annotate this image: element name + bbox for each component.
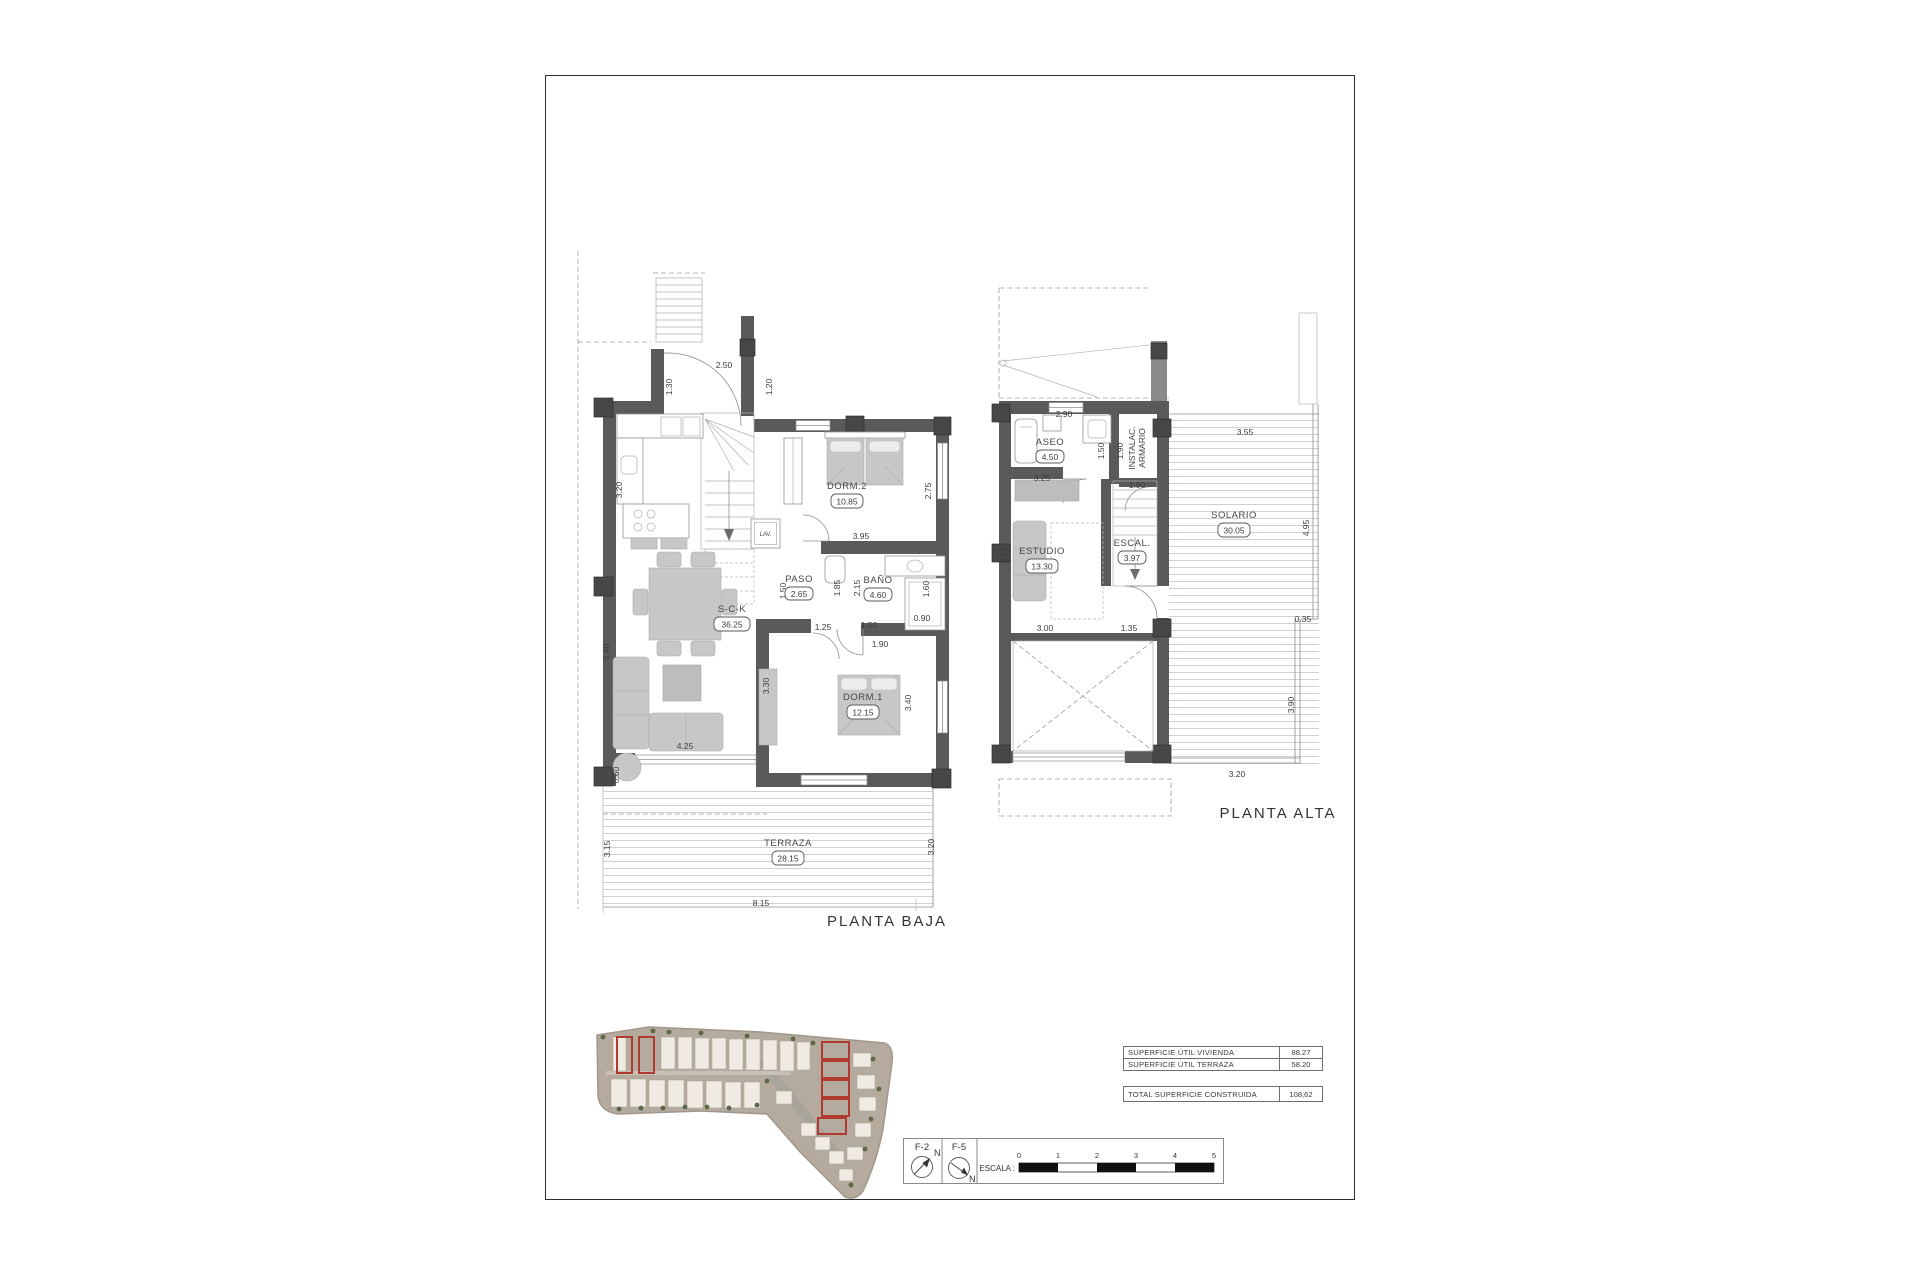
planta-baja: LAV. (578, 251, 951, 930)
row-label: SUPERFICIE ÚTIL TERRAZA (1124, 1060, 1279, 1069)
svg-text:1.50: 1.50 (1096, 442, 1106, 459)
svg-text:8.15: 8.15 (753, 898, 770, 908)
room-dorm1: DORM.1 (843, 692, 883, 703)
svg-text:10.85: 10.85 (836, 497, 858, 507)
title-planta-baja: PLANTA BAJA (827, 913, 947, 930)
svg-text:N: N (969, 1174, 976, 1184)
surface-total-table: TOTAL SUPERFICIE CONSTRUIDA 108,62 (1123, 1086, 1323, 1102)
svg-text:2.15: 2.15 (852, 579, 862, 596)
svg-text:3: 3 (1134, 1151, 1138, 1160)
table-row: SUPERFICIE ÚTIL TERRAZA 58.20 (1124, 1058, 1322, 1070)
total-value: 108,62 (1279, 1087, 1322, 1101)
void-double-height (1013, 641, 1153, 751)
svg-text:1.20: 1.20 (764, 378, 774, 395)
svg-text:1.25: 1.25 (815, 622, 832, 632)
stair-alta (1113, 481, 1157, 618)
svg-text:5.40: 5.40 (601, 643, 611, 660)
svg-text:1.60: 1.60 (921, 580, 931, 597)
room-dorm2: DORM.2 (827, 481, 867, 492)
svg-text:1.90: 1.90 (1115, 442, 1125, 459)
kitchen-fixtures (617, 414, 703, 549)
room-aseo: ASEO (1036, 437, 1064, 448)
svg-text:1.50: 1.50 (861, 620, 878, 630)
svg-text:4: 4 (1173, 1151, 1177, 1160)
svg-text:N: N (934, 1148, 941, 1158)
svg-text:3.30: 3.30 (761, 677, 771, 694)
room-paso: PASO (785, 574, 813, 585)
dorm2-furniture (784, 432, 905, 504)
svg-text:4.50: 4.50 (1042, 452, 1059, 462)
svg-text:5: 5 (1212, 1151, 1216, 1160)
room-escal: ESCAL. (1114, 538, 1151, 549)
svg-text:1.00: 1.00 (1129, 480, 1146, 490)
svg-text:0.90: 0.90 (914, 613, 931, 623)
svg-text:2.90: 2.90 (1056, 409, 1073, 419)
lav-label: LAV. (759, 532, 771, 538)
surface-table: SUPERFICIE ÚTIL VIVIENDA 88.27 SUPERFICI… (1123, 1046, 1323, 1071)
svg-text:4.10: 4.10 (998, 546, 1008, 563)
table-row-total: TOTAL SUPERFICIE CONSTRUIDA 108,62 (1124, 1087, 1322, 1101)
svg-text:13.30: 13.30 (1031, 562, 1053, 572)
svg-text:1.30: 1.30 (664, 378, 674, 395)
svg-text:3.25: 3.25 (1034, 473, 1051, 483)
svg-text:2.75: 2.75 (923, 482, 933, 499)
svg-text:0: 0 (1017, 1151, 1021, 1160)
svg-text:4.95: 4.95 (1301, 519, 1311, 536)
svg-text:1: 1 (1056, 1151, 1060, 1160)
svg-text:3.90: 3.90 (1286, 696, 1296, 713)
table-row: SUPERFICIE ÚTIL VIVIENDA 88.27 (1124, 1047, 1322, 1058)
room-sck: S-C-K (718, 604, 747, 615)
svg-text:3.40: 3.40 (903, 694, 913, 711)
row-value: 58.20 (1279, 1059, 1322, 1070)
svg-text:1.90: 1.90 (872, 639, 889, 649)
svg-text:1.85: 1.85 (832, 579, 842, 596)
row-label: SUPERFICIE ÚTIL VIVIENDA (1124, 1048, 1279, 1057)
svg-text:4.25: 4.25 (677, 741, 694, 751)
drawing-sheet: LAV. (545, 75, 1355, 1200)
svg-text:3.95: 3.95 (853, 531, 870, 541)
site-plan-aerial (591, 1024, 909, 1202)
svg-text:3.00: 3.00 (1037, 623, 1054, 633)
svg-text:F-5: F-5 (952, 1142, 966, 1153)
room-solario: SOLARIO (1211, 510, 1257, 521)
row-value: 88.27 (1279, 1047, 1322, 1058)
closet-label-2: ARMARIO (1137, 428, 1147, 468)
svg-text:1.35: 1.35 (1121, 623, 1138, 633)
room-estudio: ESTUDIO (1019, 546, 1065, 557)
room-terraza: TERRAZA (764, 838, 812, 849)
svg-text:2.65: 2.65 (791, 589, 808, 599)
svg-text:4.60: 4.60 (870, 590, 887, 600)
scale-label: ESCALA : (979, 1164, 1015, 1173)
solario-deck (1169, 414, 1319, 764)
svg-text:3.20: 3.20 (926, 838, 936, 855)
svg-text:3.55: 3.55 (1237, 427, 1254, 437)
total-label: TOTAL SUPERFICIE CONSTRUIDA (1124, 1090, 1279, 1099)
svg-text:36.25: 36.25 (721, 620, 743, 630)
room-bano: BAÑO (864, 575, 893, 586)
svg-text:2: 2 (1095, 1151, 1099, 1160)
title-planta-alta: PLANTA ALTA (1219, 805, 1336, 822)
svg-text:F-2: F-2 (915, 1142, 929, 1153)
svg-text:3.97: 3.97 (1124, 553, 1141, 563)
legend-block: F-2 N F-5 N ESCALA : 0 1 2 3 4 5 (903, 1138, 1224, 1184)
svg-text:3.15: 3.15 (602, 840, 612, 857)
svg-text:12.15: 12.15 (852, 708, 874, 718)
planta-alta: 2.90 1.50 1.90 1.00 3.25 4.10 3.00 1.35 … (992, 288, 1337, 822)
svg-text:28.15: 28.15 (777, 854, 799, 864)
closet-label-1: INSTALAC. (1127, 426, 1137, 469)
svg-text:0.35: 0.35 (1295, 614, 1312, 624)
svg-text:30.05: 30.05 (1223, 526, 1245, 536)
svg-text:3.20: 3.20 (1229, 769, 1246, 779)
svg-text:3.20: 3.20 (614, 481, 624, 498)
svg-text:2.50: 2.50 (716, 360, 733, 370)
svg-text:0.60: 0.60 (611, 766, 621, 783)
